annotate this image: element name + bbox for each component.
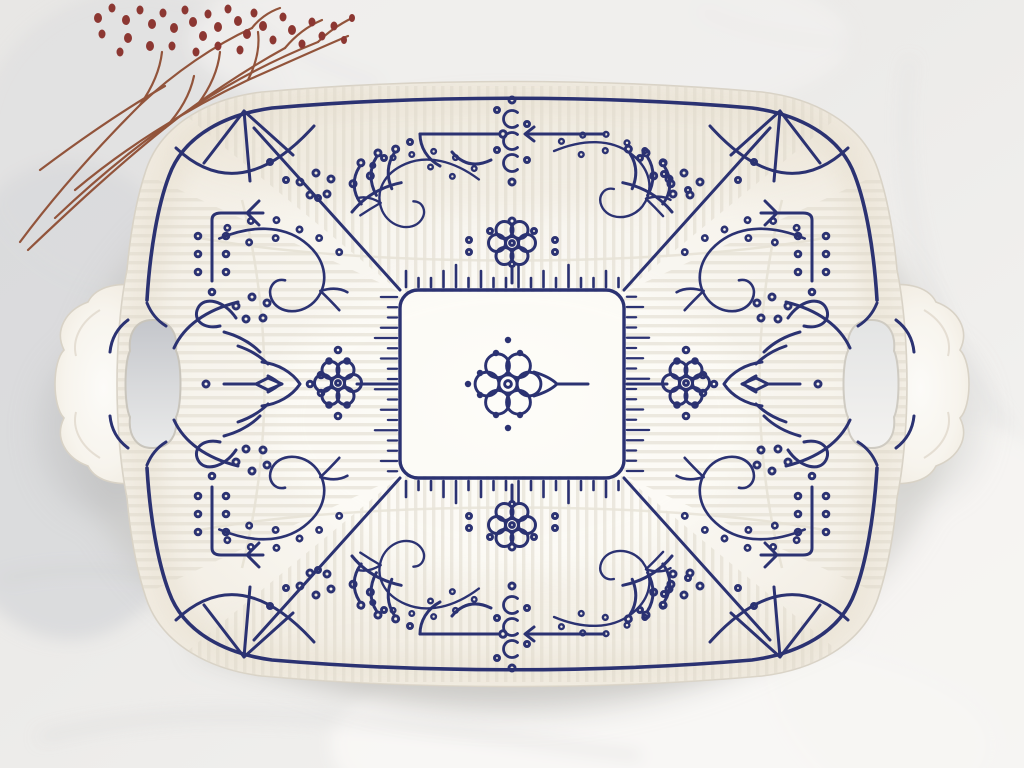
photo-stage: White porcelain serving tray with cobalt… bbox=[0, 0, 1024, 768]
handle-hole-right bbox=[844, 320, 899, 448]
photo-scene: White porcelain serving tray with cobalt… bbox=[0, 0, 1024, 768]
handle-hole-left bbox=[126, 320, 181, 448]
